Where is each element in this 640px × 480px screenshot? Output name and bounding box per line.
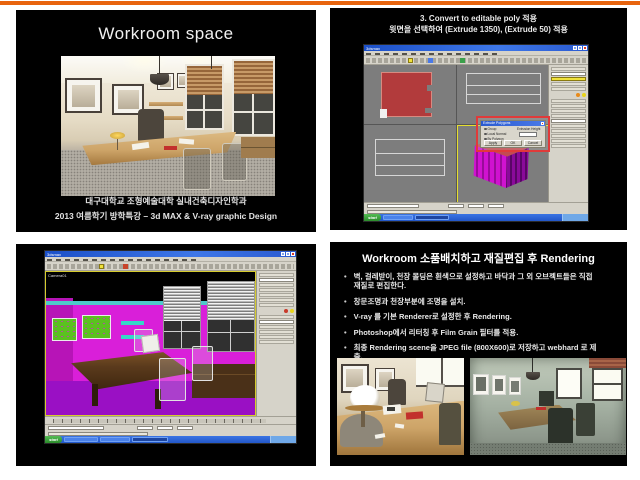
minimize-icon[interactable] xyxy=(281,252,285,256)
bullet-text: 벽, 걸레받이, 천장 몰딩은 흰색으로 설정하고 바닥과 그 외 오브젝트들은… xyxy=(354,272,598,290)
prompt-line xyxy=(367,210,457,214)
wall-shelf xyxy=(149,102,183,106)
panel-button[interactable] xyxy=(259,288,294,292)
panel-value-field[interactable] xyxy=(259,320,294,324)
mirror-icon[interactable] xyxy=(123,264,128,269)
picture-frame xyxy=(492,375,506,394)
dialog-title: Extrude Polygons xyxy=(483,121,510,125)
bullet-text: V-ray 를 기본 Renderer로 설정한 후 Rendering. xyxy=(354,312,512,321)
red-plan-shape xyxy=(381,72,433,117)
office-chair xyxy=(388,379,406,404)
chair-silhouette xyxy=(576,403,595,436)
windows-taskbar: start xyxy=(45,436,296,443)
red-book xyxy=(164,146,177,151)
extrusion-height-label: Extrusion Height xyxy=(517,127,540,131)
system-tray[interactable] xyxy=(562,214,588,221)
status-field[interactable] xyxy=(48,426,104,430)
blind-slats xyxy=(208,282,254,320)
red-roman-blind xyxy=(589,358,626,368)
red-dot-icon xyxy=(284,309,288,313)
toolbar[interactable] xyxy=(364,56,588,65)
max-screenshot-extrude: 3dsmax xyxy=(363,44,589,222)
slide1-title: Workroom space xyxy=(16,24,316,44)
bullet-text: Photoshop에서 리터칭 후 Film Grain 필터를 적용. xyxy=(354,328,519,337)
window-pane xyxy=(164,321,200,348)
office-chair xyxy=(439,403,462,446)
bullet-list: •벽, 걸레받이, 천장 몰딩은 흰색으로 설정하고 바닥과 그 외 오브젝트들… xyxy=(344,272,618,368)
coord-x-field[interactable] xyxy=(448,204,464,208)
frame-art xyxy=(476,377,486,391)
taskbar-app-button[interactable] xyxy=(64,437,98,442)
radio-icon xyxy=(484,133,487,136)
shape-notch xyxy=(425,108,432,113)
globe-lamp-rim xyxy=(345,405,386,412)
close-icon[interactable] xyxy=(291,252,295,256)
interior-photo xyxy=(61,56,275,196)
globe-lamp-stand xyxy=(361,411,365,427)
panel-tab-row[interactable] xyxy=(551,67,586,71)
editable-poly-highlight[interactable] xyxy=(551,77,586,81)
toolbar-icons xyxy=(366,58,586,63)
status-bar xyxy=(364,202,588,214)
frame-art xyxy=(495,379,504,392)
bullet-item: •창문조명과 천장부분에 조명을 설치. xyxy=(344,297,618,306)
material-editor-icon[interactable] xyxy=(460,58,465,63)
orange-dot-icon xyxy=(576,93,580,97)
radio-label: Local Normal xyxy=(488,132,507,136)
desk-lamp xyxy=(511,401,520,407)
radio-icon xyxy=(484,128,487,131)
window-with-blinds xyxy=(185,64,224,130)
magazine-photo xyxy=(387,407,396,412)
green-art-frame xyxy=(52,318,77,341)
panel-tab-row[interactable] xyxy=(259,273,294,277)
coord-y-field[interactable] xyxy=(157,426,173,430)
pendant-cord xyxy=(211,56,212,69)
frame-art xyxy=(511,381,519,392)
slide-3-max-camera-view: 3dsmax Camera01 xyxy=(16,244,316,466)
panel-button[interactable] xyxy=(551,139,586,143)
picture-frame xyxy=(473,374,489,395)
slide-1-workroom-space: Workroom space 대구 xyxy=(16,10,316,232)
bullet-marker: • xyxy=(344,297,347,306)
panel-button[interactable] xyxy=(551,134,586,138)
minimize-icon[interactable] xyxy=(573,46,577,50)
desk-leg xyxy=(92,384,98,407)
viewport-left[interactable] xyxy=(364,125,456,203)
frame-art xyxy=(72,85,95,107)
page-top-accent-bar xyxy=(0,1,640,5)
frame-art xyxy=(118,90,138,109)
extrusion-height-field[interactable] xyxy=(519,132,537,137)
coord-z-field[interactable] xyxy=(177,426,193,430)
window-pane xyxy=(234,94,273,133)
panel-button[interactable] xyxy=(259,325,294,329)
drawing-board-model xyxy=(141,334,160,353)
side-cabinet xyxy=(241,137,275,158)
red-highlight-box: Extrude Polygons Group Local Normal By P… xyxy=(476,116,550,152)
slide1-footer: 대구대학교 조형예술대학 실내건축디자인학과 2013 여름학기 방학특강 – … xyxy=(16,194,316,224)
dialog-close-icon[interactable] xyxy=(541,122,544,125)
menu-items xyxy=(47,259,196,261)
heading-line-1: 3. Convert to editable poly 적용 xyxy=(330,13,627,24)
subobject-icons[interactable] xyxy=(551,92,586,98)
slide2-heading: 3. Convert to editable poly 적용 윗면을 선택하여 … xyxy=(330,13,627,35)
slide-4-rendering-notes: Workroom 소품배치하고 재질편집 후 Rendering •벽, 걸레받… xyxy=(330,242,627,466)
bullet-item: •벽, 걸레받이, 천장 몰딩은 흰색으로 설정하고 바닥과 그 외 오브젝트들… xyxy=(344,272,618,290)
viewport-top[interactable] xyxy=(364,65,456,124)
cancel-button[interactable]: Cancel xyxy=(524,140,542,146)
taskbar-app-button-active[interactable] xyxy=(415,215,449,220)
monitor xyxy=(425,382,445,403)
panel-button[interactable] xyxy=(259,335,294,339)
system-tray[interactable] xyxy=(270,436,296,443)
picture-frame xyxy=(509,377,521,394)
command-panel[interactable] xyxy=(548,65,588,202)
maximize-icon[interactable] xyxy=(286,252,290,256)
panel-button[interactable] xyxy=(259,283,294,287)
object-name-field[interactable] xyxy=(259,278,294,282)
red-book xyxy=(536,407,547,411)
viewport-label: Camera01 xyxy=(48,273,67,278)
bullet-text: 창문조명과 천장부분에 조명을 설치. xyxy=(354,297,466,306)
green-art-frame xyxy=(82,315,111,339)
wood-blind xyxy=(234,61,273,95)
coord-y-field[interactable] xyxy=(468,204,484,208)
window-blinds-model xyxy=(163,286,201,349)
panel-button[interactable] xyxy=(259,340,294,344)
window-title: 3dsmax xyxy=(364,46,573,51)
start-button[interactable]: start xyxy=(364,214,381,221)
extrude-polygons-dialog: Extrude Polygons Group Local Normal By P… xyxy=(480,120,546,148)
status-bar xyxy=(45,424,296,436)
metal-chair xyxy=(183,148,211,190)
menu-items xyxy=(366,53,498,55)
window-pane xyxy=(187,95,222,128)
panel-button[interactable] xyxy=(551,124,586,128)
window-blinds-model xyxy=(207,281,255,353)
workspace: Extrude Polygons Group Local Normal By P… xyxy=(364,65,588,202)
timeline-track-bar[interactable] xyxy=(45,416,296,424)
bright-window xyxy=(592,368,623,401)
radio-local-normal[interactable]: Local Normal xyxy=(484,132,506,136)
windows-taskbar: start xyxy=(364,214,588,221)
panel-button[interactable] xyxy=(551,114,586,118)
yellow-dot-icon xyxy=(290,309,294,313)
radio-label: Group xyxy=(488,127,497,131)
office-chair xyxy=(138,109,164,141)
bullet-marker: • xyxy=(344,272,347,290)
wood-blind xyxy=(187,66,222,94)
footer-line-2: 2013 여름학기 방학특강 – 3d MAX & V-ray graphic … xyxy=(16,209,316,224)
panel-button[interactable] xyxy=(259,303,294,307)
window-title: 3dsmax xyxy=(45,252,281,257)
panel-button[interactable] xyxy=(259,298,294,302)
apply-button[interactable]: Apply xyxy=(484,140,502,146)
toolbar-icons xyxy=(47,264,294,269)
maximize-icon[interactable] xyxy=(578,46,582,50)
shape-notch xyxy=(427,85,432,91)
subobject-icons[interactable] xyxy=(259,308,294,314)
chair-model xyxy=(159,358,186,401)
taskbar-app-button[interactable] xyxy=(383,215,413,220)
command-panel[interactable] xyxy=(256,271,296,416)
coord-x-field[interactable] xyxy=(137,426,153,430)
prompt-line xyxy=(48,432,148,436)
panel-button[interactable] xyxy=(551,104,586,108)
bullet-item: •V-ray 를 기본 Renderer로 설정한 후 Rendering. xyxy=(344,312,618,321)
radio-group[interactable]: Group xyxy=(484,127,496,131)
carpet-floor xyxy=(470,443,626,455)
workspace: Camera01 xyxy=(45,271,296,416)
chair-model xyxy=(192,346,213,380)
panel-button[interactable] xyxy=(259,330,294,334)
chair-silhouette xyxy=(548,408,573,447)
timeline-ticks xyxy=(53,419,266,423)
snap-toggle-icon[interactable] xyxy=(408,58,413,63)
picture-frame xyxy=(65,78,101,113)
dialog-buttons: Apply OK Cancel xyxy=(481,140,545,146)
panel-button[interactable] xyxy=(551,144,586,148)
office-chair xyxy=(539,391,555,407)
status-field[interactable] xyxy=(367,204,419,208)
select-move-icon[interactable] xyxy=(428,58,433,63)
wireframe-box xyxy=(375,139,445,176)
max-screenshot-scene: 3dsmax Camera01 xyxy=(44,250,297,444)
panel-button[interactable] xyxy=(551,82,586,86)
panel-button[interactable] xyxy=(551,87,586,91)
wireframe-box xyxy=(466,73,540,104)
ok-button[interactable]: OK xyxy=(504,140,522,146)
render-image-room-view xyxy=(470,358,626,455)
toolbar[interactable] xyxy=(45,262,296,271)
dialog-body: Group Local Normal By Polygon Extrusion … xyxy=(481,126,545,141)
panel-button[interactable] xyxy=(259,315,294,319)
render-image-desk-closeup xyxy=(337,358,464,455)
panel-button[interactable] xyxy=(551,109,586,113)
bullet-item: •Photoshop에서 리터칭 후 Film Grain 필터를 적용. xyxy=(344,328,618,337)
panel-button[interactable] xyxy=(259,293,294,297)
footer-line-1: 대구대학교 조형예술대학 실내건축디자인학과 xyxy=(16,194,316,209)
window-with-blinds xyxy=(232,59,275,136)
panel-button[interactable] xyxy=(551,129,586,133)
desk-lamp xyxy=(110,132,125,139)
panel-button[interactable] xyxy=(551,99,586,103)
slide-2-editable-poly: 3. Convert to editable poly 적용 윗면을 선택하여 … xyxy=(330,8,627,230)
slide4-title: Workroom 소품배치하고 재질편집 후 Rendering xyxy=(330,250,627,266)
object-name-field[interactable] xyxy=(551,72,586,76)
heading-line-2: 윗면을 선택하여 (Extrude 1350), (Extrude 50) 적용 xyxy=(330,24,627,35)
bright-window xyxy=(556,368,583,399)
taskbar-app-button[interactable] xyxy=(100,437,130,442)
blind-slats xyxy=(164,287,200,320)
close-icon[interactable] xyxy=(583,46,587,50)
pendant-lamp xyxy=(526,372,540,381)
bullet-marker: • xyxy=(344,312,347,321)
selection-marker xyxy=(380,109,387,118)
camera-viewport[interactable]: Camera01 xyxy=(45,271,256,416)
window-pane xyxy=(208,320,254,351)
snap-toggle-icon[interactable] xyxy=(99,264,104,269)
lamp-stand xyxy=(117,139,118,150)
paper-on-desk xyxy=(179,138,194,144)
coord-z-field[interactable] xyxy=(488,204,504,208)
teal-shelf xyxy=(121,321,144,325)
taskbar-app-button-active[interactable] xyxy=(132,437,168,442)
panel-value-field[interactable] xyxy=(551,119,586,123)
start-button[interactable]: start xyxy=(45,436,62,443)
yellow-dot-icon xyxy=(582,93,586,97)
bullet-marker: • xyxy=(344,328,347,337)
